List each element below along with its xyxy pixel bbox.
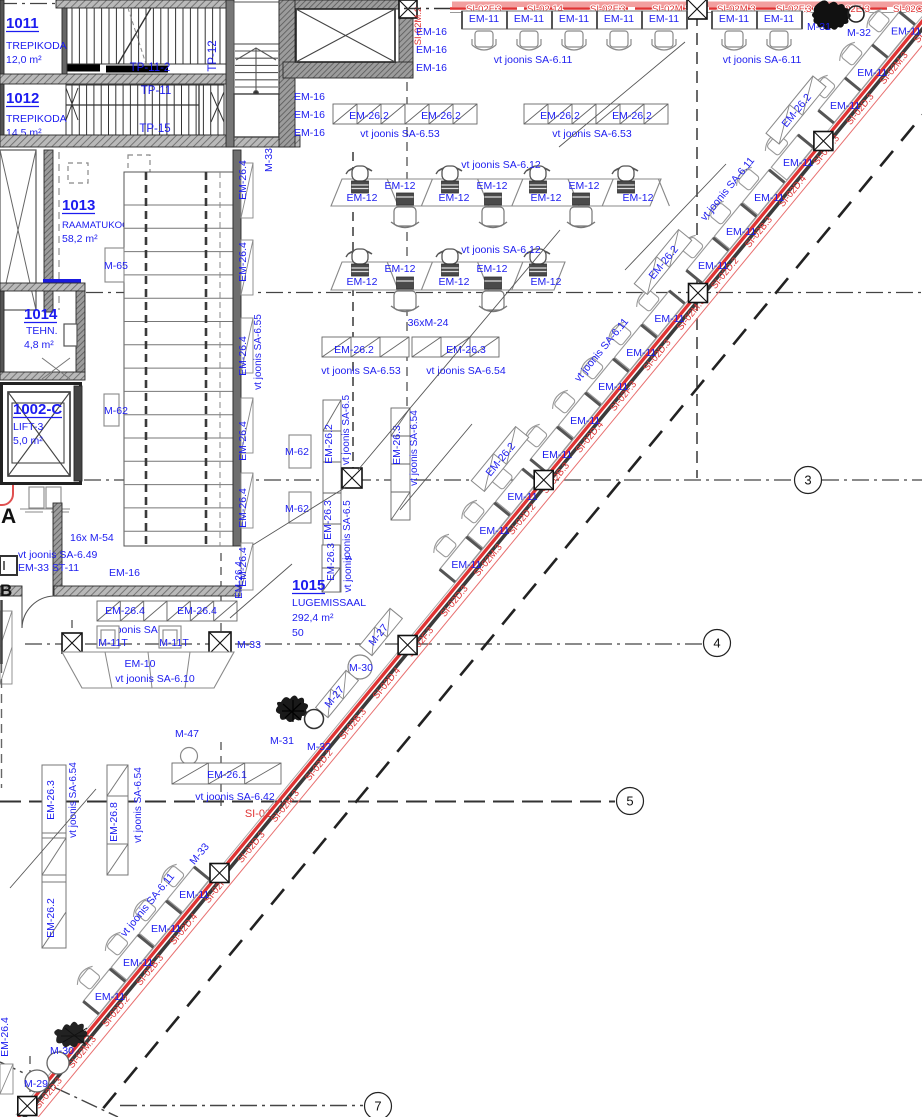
svg-text:TP-15: TP-15 (139, 123, 170, 135)
svg-text:EM-26.4: EM-26.4 (0, 1017, 11, 1057)
svg-text:EM-11: EM-11 (783, 157, 813, 169)
svg-text:M-30: M-30 (50, 1045, 74, 1057)
svg-text:EM-26.1: EM-26.1 (207, 769, 247, 781)
svg-text:vt joonis SA-6.53: vt joonis SA-6.53 (552, 128, 632, 140)
svg-text:M-11T: M-11T (98, 637, 128, 649)
svg-text:M-65: M-65 (104, 260, 128, 272)
svg-text:EM-12: EM-12 (439, 192, 470, 204)
svg-text:SI-02C: SI-02C (893, 4, 922, 15)
svg-text:7: 7 (374, 1099, 381, 1114)
svg-text:EM-26.4: EM-26.4 (105, 605, 145, 617)
svg-text:TP-11: TP-11 (141, 85, 171, 97)
svg-text:vt joonis: vt joonis (343, 556, 354, 593)
svg-text:EM-12: EM-12 (531, 276, 562, 288)
svg-text:EM-12: EM-12 (531, 192, 562, 204)
svg-text:TEHN.: TEHN. (26, 325, 58, 337)
svg-text:EM-26.2: EM-26.2 (45, 898, 57, 938)
svg-text:EM-11: EM-11 (95, 991, 125, 1003)
svg-text:EM-11: EM-11 (891, 26, 921, 38)
svg-text:EM-12: EM-12 (477, 180, 508, 192)
svg-text:EM-26.4: EM-26.4 (237, 160, 249, 200)
svg-text:EM-26.4: EM-26.4 (237, 421, 249, 461)
svg-text:vt joonis SA-6.54: vt joonis SA-6.54 (133, 767, 144, 843)
svg-text:EM-12: EM-12 (569, 180, 600, 192)
svg-text:vt joonis SA-6.55: vt joonis SA-6.55 (253, 314, 264, 390)
svg-text:TREPIKODA: TREPIKODA (6, 40, 67, 52)
svg-text:EM-16: EM-16 (294, 91, 325, 103)
svg-text:M-32: M-32 (307, 741, 331, 753)
svg-text:EM-11: EM-11 (649, 13, 679, 25)
svg-text:EM-26.3: EM-26.3 (326, 543, 337, 581)
svg-text:EM-12: EM-12 (347, 276, 378, 288)
svg-text:vt joonis SA-6.53: vt joonis SA-6.53 (360, 128, 440, 140)
svg-text:1013: 1013 (62, 197, 95, 214)
svg-text:EM-12: EM-12 (477, 263, 508, 275)
svg-text:M-47: M-47 (175, 728, 199, 740)
svg-text:EM-11: EM-11 (830, 100, 860, 112)
svg-text:EM-16: EM-16 (416, 62, 447, 74)
svg-text:M-31: M-31 (807, 21, 831, 33)
svg-text:EM-10: EM-10 (125, 658, 156, 670)
svg-text:12,0 m²: 12,0 m² (6, 54, 42, 66)
svg-text:EM-26.8: EM-26.8 (108, 802, 120, 842)
svg-text:EM-11: EM-11 (654, 313, 684, 325)
svg-text:EM-26.2: EM-26.2 (334, 344, 374, 356)
svg-text:16x M-54: 16x M-54 (70, 532, 114, 544)
svg-text:vt joonis SA-6.49: vt joonis SA-6.49 (18, 549, 98, 561)
svg-text:EM-26.2: EM-26.2 (540, 110, 580, 122)
svg-text:EM-12: EM-12 (385, 263, 416, 275)
svg-text:EM-12: EM-12 (623, 192, 654, 204)
svg-text:EM-11: EM-11 (514, 13, 544, 25)
svg-text:EM-11: EM-11 (451, 559, 481, 571)
svg-text:EM-26.3: EM-26.3 (322, 500, 334, 540)
svg-text:EM-16: EM-16 (416, 44, 447, 56)
svg-text:vt joonis SA-6.10: vt joonis SA-6.10 (115, 673, 195, 685)
svg-text:M-30: M-30 (349, 662, 373, 674)
svg-text:M-31: M-31 (270, 735, 294, 747)
svg-text:EM-26.2: EM-26.2 (323, 424, 335, 464)
svg-text:EM-26.2: EM-26.2 (612, 110, 652, 122)
svg-text:EM-16: EM-16 (294, 127, 325, 139)
svg-text:1012: 1012 (6, 90, 39, 107)
svg-text:EM-11: EM-11 (507, 491, 537, 503)
svg-text:292,4 m²: 292,4 m² (292, 612, 334, 624)
svg-text:EM-26.4: EM-26.4 (237, 242, 249, 282)
svg-text:M-32: M-32 (847, 27, 871, 39)
svg-text:EM-11: EM-11 (570, 415, 600, 427)
svg-text:EM-11: EM-11 (726, 226, 756, 238)
svg-text:EM-11: EM-11 (151, 923, 181, 935)
svg-text:vt joonis SA-6.54: vt joonis SA-6.54 (409, 410, 420, 486)
svg-text:vt joonis SA-6.53: vt joonis SA-6.53 (321, 365, 401, 377)
svg-text:1015: 1015 (292, 577, 325, 594)
svg-text:EM-11: EM-11 (764, 13, 794, 25)
svg-text:EM-11: EM-11 (719, 13, 749, 25)
svg-text:EM-11: EM-11 (123, 957, 153, 969)
svg-text:EM-26.4: EM-26.4 (234, 561, 245, 599)
svg-text:EM-26.3: EM-26.3 (391, 425, 403, 465)
svg-text:EM-26.4: EM-26.4 (237, 488, 249, 528)
svg-text:joonis SA-6.5: joonis SA-6.5 (342, 500, 353, 561)
svg-text:EM-11: EM-11 (479, 525, 509, 537)
svg-text:EM-11: EM-11 (559, 13, 589, 25)
svg-text:M-62: M-62 (104, 405, 128, 417)
svg-text:vt joonis SA-6.5: vt joonis SA-6.5 (341, 395, 352, 465)
svg-text:EM-16: EM-16 (416, 26, 447, 38)
svg-text:EM-26.2: EM-26.2 (349, 110, 389, 122)
svg-text:EM-11: EM-11 (698, 260, 728, 272)
svg-text:EM-11: EM-11 (626, 347, 656, 359)
svg-text:EM-12: EM-12 (439, 276, 470, 288)
svg-text:3: 3 (804, 473, 811, 488)
svg-text:LUGEMISSAAL: LUGEMISSAAL (292, 597, 366, 609)
svg-text:vt joonis SA-6.54: vt joonis SA-6.54 (68, 762, 79, 838)
svg-text:EM-11: EM-11 (542, 449, 572, 461)
svg-text:EM-11: EM-11 (179, 889, 209, 901)
svg-text:EM-33 ST-11: EM-33 ST-11 (18, 562, 79, 574)
svg-text:EM-26.2: EM-26.2 (421, 110, 461, 122)
svg-text:36xM-24: 36xM-24 (408, 317, 449, 329)
svg-text:EM-16: EM-16 (294, 109, 325, 121)
svg-text:vt joonis SA-6.42: vt joonis SA-6.42 (195, 791, 275, 803)
svg-text:4,8 m²: 4,8 m² (24, 339, 54, 351)
svg-text:M-62: M-62 (285, 503, 309, 515)
svg-text:EM-26.3: EM-26.3 (446, 344, 486, 356)
svg-text:EM-26.4: EM-26.4 (237, 336, 249, 376)
svg-text:vt joonis SA-6.12: vt joonis SA-6.12 (461, 159, 541, 171)
svg-text:50: 50 (292, 627, 304, 639)
svg-text:EM-11: EM-11 (754, 192, 784, 204)
svg-text:M-33: M-33 (237, 639, 261, 651)
svg-text:A: A (1, 505, 16, 528)
svg-text:M-33: M-33 (263, 148, 275, 172)
svg-text:LIFT-3: LIFT-3 (13, 421, 44, 433)
svg-text:M-62: M-62 (285, 446, 309, 458)
svg-text:vt joonis SA-6.11: vt joonis SA-6.11 (494, 54, 573, 66)
svg-text:EM-12: EM-12 (385, 180, 416, 192)
svg-text:1014: 1014 (24, 306, 58, 323)
svg-text:EM-26.4: EM-26.4 (177, 605, 217, 617)
svg-text:B: B (0, 581, 12, 600)
svg-text:vt joonis SA-6.11: vt joonis SA-6.11 (723, 54, 802, 66)
svg-text:1011: 1011 (6, 15, 39, 32)
svg-text:EM-26.3: EM-26.3 (45, 780, 57, 820)
svg-text:5,0 m²: 5,0 m² (13, 435, 43, 447)
svg-text:EM-11: EM-11 (598, 381, 628, 393)
svg-text:TP-12: TP-12 (207, 40, 219, 71)
svg-text:EM-11: EM-11 (857, 67, 887, 79)
svg-text:M-11T: M-11T (159, 637, 189, 649)
svg-text:4: 4 (713, 636, 720, 651)
svg-text:EM-11: EM-11 (469, 13, 499, 25)
svg-text:vt joonis SA-6.12: vt joonis SA-6.12 (461, 244, 541, 256)
svg-text:TP-11-2: TP-11-2 (130, 62, 171, 74)
svg-text:TREPIKODA: TREPIKODA (6, 113, 67, 125)
svg-text:EM-11: EM-11 (604, 13, 634, 25)
svg-text:EM-16: EM-16 (109, 567, 140, 579)
svg-text:1002-C: 1002-C (13, 401, 62, 418)
svg-text:5: 5 (626, 794, 633, 809)
svg-text:M-29: M-29 (24, 1078, 48, 1090)
svg-text:58,2 m²: 58,2 m² (62, 233, 98, 245)
svg-text:EM-12: EM-12 (347, 192, 378, 204)
